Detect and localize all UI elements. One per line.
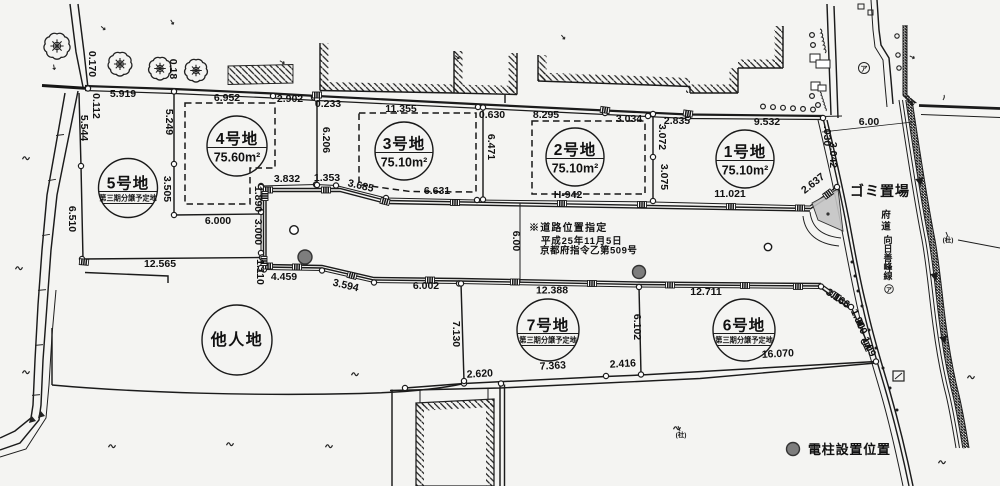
svg-text:1.110: 1.110	[254, 259, 266, 285]
svg-text:道: 道	[881, 221, 891, 233]
svg-text:0.18: 0.18	[167, 59, 179, 80]
svg-text:7.363: 7.363	[539, 359, 566, 372]
svg-text:4号地: 4号地	[216, 129, 259, 148]
svg-text:3.075: 3.075	[658, 164, 670, 190]
svg-text:0.112: 0.112	[90, 93, 102, 119]
svg-text:6.471: 6.471	[485, 134, 497, 160]
svg-text:府: 府	[881, 209, 891, 221]
svg-text:0.170: 0.170	[86, 51, 98, 77]
svg-text:ゴミ置場: ゴミ置場	[850, 183, 910, 199]
svg-text:11.021: 11.021	[714, 188, 746, 200]
svg-text:6.510: 6.510	[66, 206, 78, 232]
svg-text:線: 線	[883, 270, 892, 281]
svg-text:4.459: 4.459	[271, 271, 297, 283]
svg-text:6.000: 6.000	[205, 215, 231, 227]
svg-text:3.042: 3.042	[827, 142, 839, 168]
svg-text:12.711: 12.711	[690, 286, 722, 298]
svg-text:16.070: 16.070	[761, 347, 794, 361]
svg-text:電柱設置位置: 電柱設置位置	[808, 442, 891, 457]
svg-text:9.532: 9.532	[754, 116, 780, 128]
svg-text:7号地: 7号地	[527, 316, 570, 335]
svg-text:2号地: 2号地	[554, 140, 597, 159]
svg-text:H-942: H-942	[554, 189, 583, 201]
svg-text:12.388: 12.388	[536, 285, 568, 297]
svg-text:5号地: 5号地	[107, 174, 150, 193]
svg-text:8.295: 8.295	[533, 109, 559, 121]
svg-text:6.002: 6.002	[413, 280, 439, 292]
svg-text:6.00: 6.00	[510, 231, 522, 252]
svg-text:3.832: 3.832	[274, 173, 300, 185]
svg-text:6.631: 6.631	[424, 185, 450, 197]
svg-text:5.919: 5.919	[110, 88, 136, 100]
svg-text:3.000: 3.000	[252, 219, 264, 245]
svg-text:12.565: 12.565	[144, 258, 176, 270]
svg-text:0.630: 0.630	[479, 109, 505, 121]
svg-text:6.00: 6.00	[859, 116, 880, 128]
svg-text:(社): (社)	[676, 430, 687, 439]
svg-text:他人地: 他人地	[210, 330, 264, 349]
svg-text:5.544: 5.544	[78, 115, 90, 141]
svg-text:1号地: 1号地	[724, 142, 767, 161]
svg-text:1.890: 1.890	[252, 186, 264, 212]
svg-text:11.355: 11.355	[385, 103, 417, 115]
svg-text:2.902: 2.902	[277, 93, 303, 105]
svg-text:1.353: 1.353	[314, 172, 340, 184]
svg-text:ア: ア	[861, 65, 868, 73]
svg-text:6.102: 6.102	[631, 314, 643, 340]
svg-text:6号地: 6号地	[723, 316, 766, 335]
svg-text:京都府指令乙第509号: 京都府指令乙第509号	[540, 245, 637, 257]
svg-text:※道路位置指定: ※道路位置指定	[529, 221, 607, 234]
svg-text:3.072: 3.072	[656, 124, 668, 150]
svg-text:5.249: 5.249	[163, 109, 175, 135]
svg-text:75.10m²: 75.10m²	[381, 156, 428, 170]
svg-text:第三期分譲予定地: 第三期分譲予定地	[715, 336, 773, 345]
svg-text:3.034: 3.034	[616, 113, 642, 125]
svg-text:第三期分譲予定地: 第三期分譲予定地	[519, 336, 577, 345]
svg-text:0.233: 0.233	[315, 98, 341, 110]
svg-text:3号地: 3号地	[383, 134, 426, 153]
svg-text:第三期分譲予定地: 第三期分譲予定地	[99, 194, 157, 203]
svg-text:75.10m²: 75.10m²	[722, 164, 769, 178]
svg-text:ア: ア	[886, 287, 892, 294]
svg-text:2.620: 2.620	[466, 367, 493, 380]
svg-text:6.206: 6.206	[320, 127, 332, 153]
svg-text:75.60m²: 75.60m²	[214, 151, 261, 165]
svg-text:2.416: 2.416	[609, 357, 636, 370]
svg-text:3.505: 3.505	[161, 176, 173, 202]
svg-text:7.130: 7.130	[450, 321, 462, 347]
svg-text:75.10m²: 75.10m²	[552, 162, 599, 176]
svg-text:6.952: 6.952	[214, 92, 240, 104]
